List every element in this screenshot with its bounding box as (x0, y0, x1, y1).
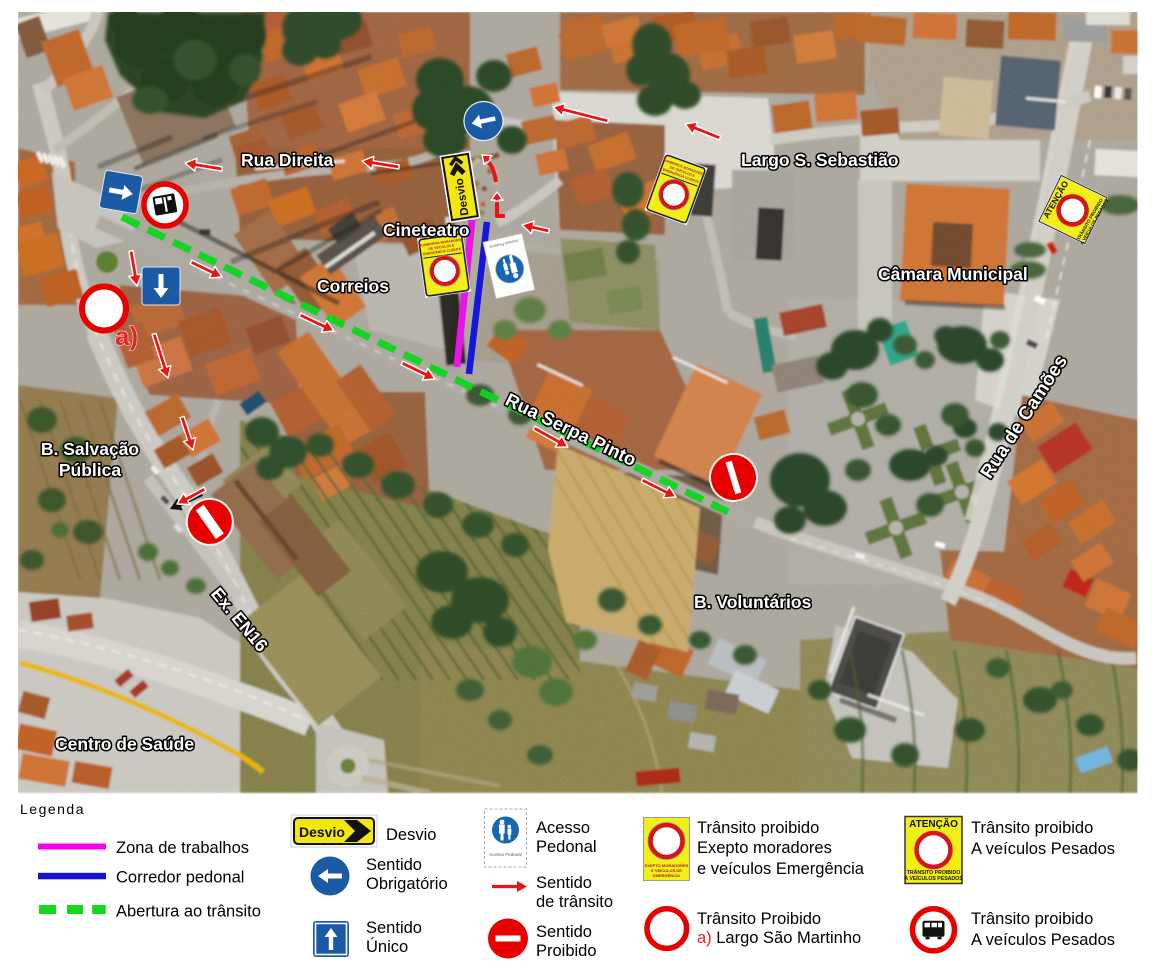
svg-text:Pública: Pública (59, 460, 122, 480)
svg-text:TRÂNSITO PROIBIDO: TRÂNSITO PROIBIDO (907, 869, 961, 876)
svg-text:Legenda: Legenda (20, 801, 85, 817)
svg-text:Trânsito proibido: Trânsito proibido (697, 819, 819, 837)
svg-text:Zona de trabalhos: Zona de trabalhos (116, 839, 249, 857)
svg-text:B. Salvação: B. Salvação (41, 439, 139, 459)
svg-text:B. Voluntários: B. Voluntários (694, 592, 812, 612)
svg-text:Pedonal: Pedonal (536, 838, 597, 856)
svg-text:Desvio: Desvio (299, 824, 345, 840)
svg-text:Largo S. Sebastião: Largo S. Sebastião (741, 150, 899, 170)
svg-text:Trânsito Proibido: Trânsito Proibido (697, 910, 821, 928)
svg-text:Corredor pedonal: Corredor pedonal (116, 869, 244, 887)
svg-text:Sentido: Sentido (536, 923, 592, 941)
svg-text:de trânsito: de trânsito (536, 893, 613, 911)
svg-text:Trânsito proibido: Trânsito proibido (971, 910, 1093, 928)
svg-text:Cineteatro: Cineteatro (383, 220, 470, 240)
svg-text:Proibido: Proibido (536, 942, 597, 960)
svg-text:Trânsito proibido: Trânsito proibido (971, 819, 1093, 837)
svg-text:Acesso Pedonal: Acesso Pedonal (489, 852, 522, 857)
svg-text:Câmara Municipal: Câmara Municipal (878, 264, 1028, 284)
svg-text:Centro de Saúde: Centro de Saúde (55, 734, 194, 754)
svg-text:A veículos Pesados: A veículos Pesados (971, 840, 1115, 858)
svg-text:Sentido: Sentido (366, 856, 422, 874)
svg-text:ATENÇÃO: ATENÇÃO (909, 817, 958, 830)
svg-text:a): a) (115, 321, 138, 351)
svg-text:Rua Direita: Rua Direita (241, 150, 334, 170)
svg-text:EMERGÊNCIA: EMERGÊNCIA (653, 873, 680, 878)
svg-text:Abertura ao trânsito: Abertura ao trânsito (116, 903, 261, 921)
svg-text:Exepto moradores: Exepto moradores (697, 839, 832, 857)
svg-text:e veículos Emergência: e veículos Emergência (697, 860, 865, 878)
svg-text:a) Largo São Martinho: a) Largo São Martinho (697, 929, 861, 947)
svg-text:A VEÍCULOS PESADOS: A VEÍCULOS PESADOS (904, 874, 963, 882)
svg-text:Sentido: Sentido (366, 919, 422, 937)
svg-text:Correios: Correios (317, 276, 389, 296)
svg-text:Desvio: Desvio (386, 826, 436, 844)
svg-text:Único: Único (366, 937, 408, 956)
svg-text:Acesso: Acesso (536, 819, 590, 837)
svg-text:Obrigatório: Obrigatório (366, 875, 448, 893)
svg-text:Sentido: Sentido (536, 874, 592, 892)
svg-text:A veículos Pesados: A veículos Pesados (971, 931, 1115, 949)
